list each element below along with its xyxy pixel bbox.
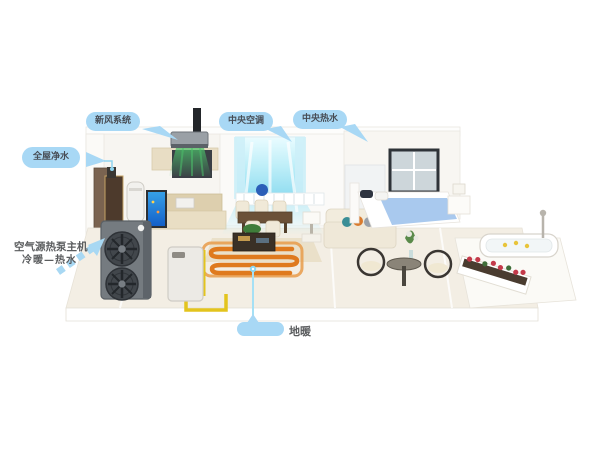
table-lamp: [303, 212, 320, 224]
floor-front-face: [66, 308, 538, 321]
pillow-white: [375, 192, 388, 200]
callout-water-purification: 全屋净水: [22, 147, 80, 168]
aquarium: [148, 192, 165, 226]
heat-pump-title: 空气源热泵主机: [14, 241, 88, 254]
floor-heating-banner: [237, 322, 284, 336]
curtain-left: [234, 137, 245, 199]
house-cutaway-illustration: [0, 0, 600, 450]
nightstand: [448, 196, 470, 214]
blue-table-decor: [256, 184, 268, 196]
headboard: [350, 183, 359, 223]
curtain-right: [295, 137, 306, 199]
callout-floor-heating: 地暖: [289, 323, 311, 339]
callout-heat-pump: 空气源热泵主机 冷暖—热水: [14, 241, 88, 267]
nightstand-lamp: [453, 184, 465, 194]
dining-table: [238, 212, 292, 223]
heat-pump-subtitle: 冷暖—热水: [22, 254, 88, 267]
callout-central-ac: 中央空调: [219, 112, 273, 131]
fan-bottom-icon: [106, 268, 138, 300]
tank-display: [172, 252, 185, 258]
pillow-dark: [360, 190, 373, 198]
fresh-air-beam: [169, 148, 211, 176]
rubber-duck: [503, 243, 507, 247]
fan-top-icon: [105, 232, 139, 266]
tall-cabinet: [105, 176, 123, 222]
callout-fresh-air: 新风系统: [86, 112, 140, 131]
heat-pump-side: [143, 222, 151, 298]
home-heat-pump-system-diagram: 新风系统 中央空调 中央热水 全屋净水 空气源热泵主机 冷暖—热水 地暖: [0, 0, 600, 450]
fresh-air-unit-vent: [171, 144, 208, 148]
counter-appliance: [176, 198, 194, 208]
brand-logo-badge: [138, 225, 144, 231]
callout-central-hot-water: 中央热水: [293, 110, 347, 129]
plant: [243, 224, 261, 234]
